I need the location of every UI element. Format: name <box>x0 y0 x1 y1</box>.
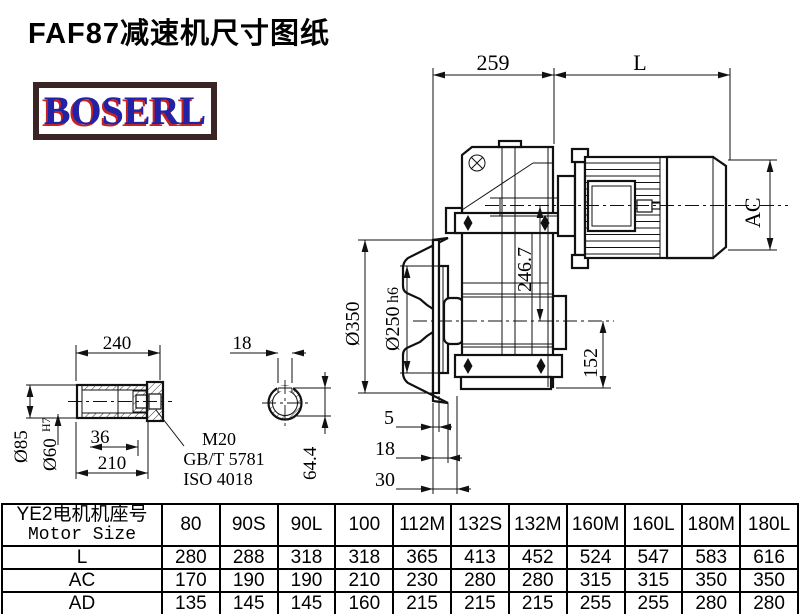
dim-dia60-fit-label: H7 <box>39 417 53 432</box>
cell-AD-90S: 145 <box>220 592 278 614</box>
table-row-L: L 280 288 318 318 365 413 452 524 547 58… <box>2 546 798 569</box>
cell-L-132M: 452 <box>509 546 567 569</box>
cell-L-90L: 318 <box>278 546 336 569</box>
cell-AC-100: 210 <box>335 569 393 592</box>
dim-L-label: L <box>633 50 646 75</box>
dim-210-label: 210 <box>98 453 127 474</box>
motor-flange <box>575 162 585 255</box>
motor-nameplate <box>588 181 635 231</box>
col-90S: 90S <box>220 504 278 546</box>
cell-AD-180M: 280 <box>682 592 740 614</box>
col-132S: 132S <box>451 504 509 546</box>
dim-5-label: 5 <box>384 407 394 429</box>
cell-L-132S: 413 <box>451 546 509 569</box>
extension-lines <box>26 68 777 494</box>
motor-size-header: YE2电机机座号 Motor Size <box>2 504 162 546</box>
cell-AD-180L: 280 <box>740 592 798 614</box>
cell-AD-100: 160 <box>335 592 393 614</box>
cell-AD-90L: 145 <box>278 592 336 614</box>
cell-AD-132M: 215 <box>509 592 567 614</box>
col-112M: 112M <box>393 504 451 546</box>
col-180M: 180M <box>682 504 740 546</box>
dimension-drawing: 259 L AC Ø350 Ø250 h6 246.7 152 5 18 30 … <box>0 0 800 502</box>
cell-AC-160M: 315 <box>567 569 625 592</box>
col-100: 100 <box>335 504 393 546</box>
dim-36-label: 36 <box>91 427 110 448</box>
dim-152-label: 152 <box>580 348 602 378</box>
dim-644-label: 64.4 <box>300 446 321 480</box>
cell-AC-180L: 350 <box>740 569 798 592</box>
motor-fan-cowl <box>667 157 726 258</box>
dim-18-side-label: 18 <box>375 438 395 460</box>
cell-L-180M: 583 <box>682 546 740 569</box>
dimension-labels: 259 L AC Ø350 Ø250 h6 246.7 152 5 18 30 … <box>11 50 765 491</box>
cell-L-112M: 365 <box>393 546 451 569</box>
dim-AC-label: AC <box>740 197 765 228</box>
row-label-L: L <box>2 546 162 569</box>
dim-259-label: 259 <box>477 50 510 75</box>
output-hub-right <box>553 296 566 349</box>
dim-18-key-label: 18 <box>233 333 252 354</box>
col-90L: 90L <box>278 504 336 546</box>
cell-L-180L: 616 <box>740 546 798 569</box>
col-160M: 160M <box>567 504 625 546</box>
cell-AD-132S: 215 <box>451 592 509 614</box>
col-80: 80 <box>162 504 220 546</box>
col-180L: 180L <box>740 504 798 546</box>
thread-label: M20 <box>202 429 236 449</box>
cell-L-80: 280 <box>162 546 220 569</box>
table-row-AD: AD 135 145 145 160 215 215 215 255 255 2… <box>2 592 798 614</box>
dim-dia60-label: Ø60 <box>40 438 61 471</box>
bottom-cap <box>461 377 551 389</box>
motor-size-header-en: Motor Size <box>3 525 161 545</box>
cell-AD-80: 135 <box>162 592 220 614</box>
dim-dia85-label: Ø85 <box>11 430 32 463</box>
cell-AD-160L: 255 <box>625 592 683 614</box>
col-132M: 132M <box>509 504 567 546</box>
dim-246-label: 246.7 <box>514 247 536 292</box>
motor-adapter <box>558 176 575 236</box>
cell-AC-80: 170 <box>162 569 220 592</box>
dim-dia350-label: Ø350 <box>342 302 364 346</box>
row-label-AD: AD <box>2 592 162 614</box>
std-gb-label: GB/T 5781 <box>183 449 264 469</box>
top-boss <box>499 141 521 147</box>
cell-AD-112M: 215 <box>393 592 451 614</box>
cell-L-90S: 288 <box>220 546 278 569</box>
cell-AC-90L: 190 <box>278 569 336 592</box>
cell-AC-90S: 190 <box>220 569 278 592</box>
dim-dia250-fit-label: h6 <box>385 287 402 303</box>
cell-AC-112M: 230 <box>393 569 451 592</box>
table-header-row: YE2电机机座号 Motor Size 80 90S 90L 100 112M … <box>2 504 798 546</box>
cell-L-160L: 547 <box>625 546 683 569</box>
cell-AC-160L: 315 <box>625 569 683 592</box>
cell-AD-160M: 255 <box>567 592 625 614</box>
cell-AC-132M: 280 <box>509 569 567 592</box>
table-row-AC: AC 170 190 190 210 230 280 280 315 315 3… <box>2 569 798 592</box>
dim-240-label: 240 <box>103 333 132 354</box>
col-160L: 160L <box>625 504 683 546</box>
std-iso-label: ISO 4018 <box>183 469 253 489</box>
cell-L-100: 318 <box>335 546 393 569</box>
row-label-AC: AC <box>2 569 162 592</box>
dim-dia250-label: Ø250 <box>382 307 404 351</box>
motor-hub-detail <box>637 200 652 212</box>
gearbox-housing <box>462 147 553 387</box>
dim-30-label: 30 <box>375 469 395 491</box>
cell-AC-132S: 280 <box>451 569 509 592</box>
drawing-page: FAF87减速机尺寸图纸 BOSERL <box>0 0 800 614</box>
main-view <box>403 141 726 403</box>
motor-size-header-cn: YE2电机机座号 <box>3 505 161 525</box>
cell-L-160M: 524 <box>567 546 625 569</box>
cell-AC-180M: 350 <box>682 569 740 592</box>
motor-size-table: YE2电机机座号 Motor Size 80 90S 90L 100 112M … <box>1 503 799 614</box>
